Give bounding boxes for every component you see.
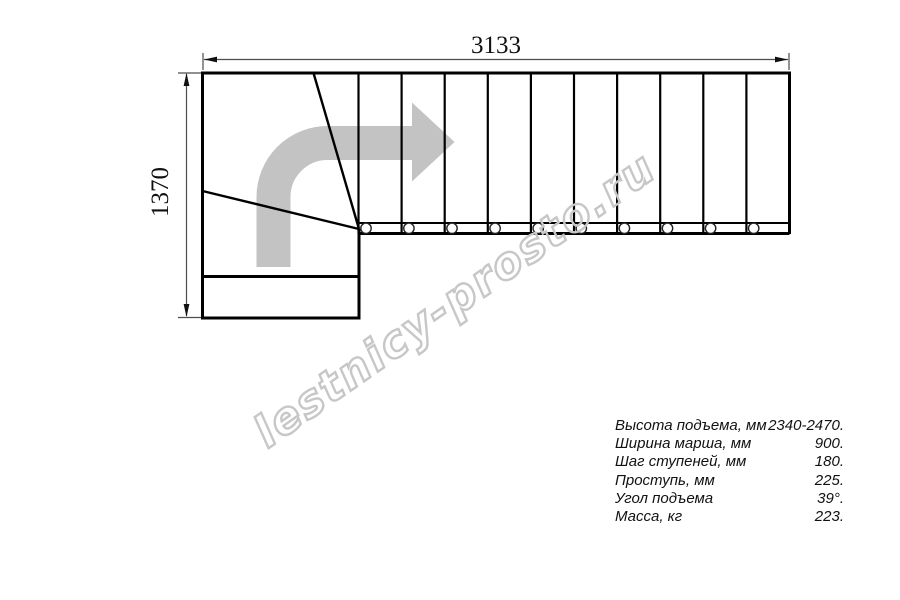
spec-label: Масса, кг [615, 508, 682, 526]
spec-row-tread: Проступь, мм 225. [615, 472, 844, 490]
baluster-circle [447, 223, 457, 233]
baluster-circles [361, 223, 759, 233]
spec-row-mass: Масса, кг 223. [615, 508, 844, 526]
dimension-arrow-right [775, 57, 788, 63]
dimension-left-value: 1370 [147, 167, 174, 217]
spec-value: 39°. [817, 490, 844, 508]
baluster-circle [361, 223, 371, 233]
dimension-arrow-left [204, 57, 217, 63]
baluster-circle [662, 223, 672, 233]
spec-row-flight-width: Ширина марша, мм 900. [615, 435, 844, 453]
baluster-circle [749, 223, 759, 233]
baluster-circle [533, 223, 543, 233]
direction-arrow-head [412, 103, 455, 182]
direction-arrow-shaft [274, 143, 414, 267]
baluster-circle [705, 223, 715, 233]
direction-arrow [274, 103, 455, 268]
spec-list: Высота подъема, мм 2340-2470. Ширина мар… [615, 417, 844, 526]
dimension-top-value: 3133 [471, 32, 521, 59]
spec-label: Ширина марша, мм [615, 435, 751, 453]
spec-label: Проступь, мм [615, 472, 715, 490]
baluster-circle [619, 223, 629, 233]
staircase-plan-page: 3133 1370 [0, 0, 900, 600]
spec-label: Шаг ступеней, мм [615, 453, 746, 471]
spec-label: Угол подъема [615, 490, 713, 508]
dimension-left [178, 73, 201, 318]
spec-label: Высота подъема, мм [615, 417, 767, 435]
spec-value: 900. [815, 435, 844, 453]
baluster-circle [576, 223, 586, 233]
spec-value: 2340-2470. [768, 417, 844, 435]
dimension-arrow-up [184, 73, 190, 86]
spec-row-height: Высота подъема, мм 2340-2470. [615, 417, 844, 435]
spec-value: 223. [815, 508, 844, 526]
spec-value: 225. [815, 472, 844, 490]
baluster-circle [490, 223, 500, 233]
baluster-circle [404, 223, 414, 233]
spec-value: 180. [815, 453, 844, 471]
dimension-arrow-down [184, 304, 190, 317]
spec-row-step-pitch: Шаг ступеней, мм 180. [615, 453, 844, 471]
spec-row-angle: Угол подъема 39°. [615, 490, 844, 508]
